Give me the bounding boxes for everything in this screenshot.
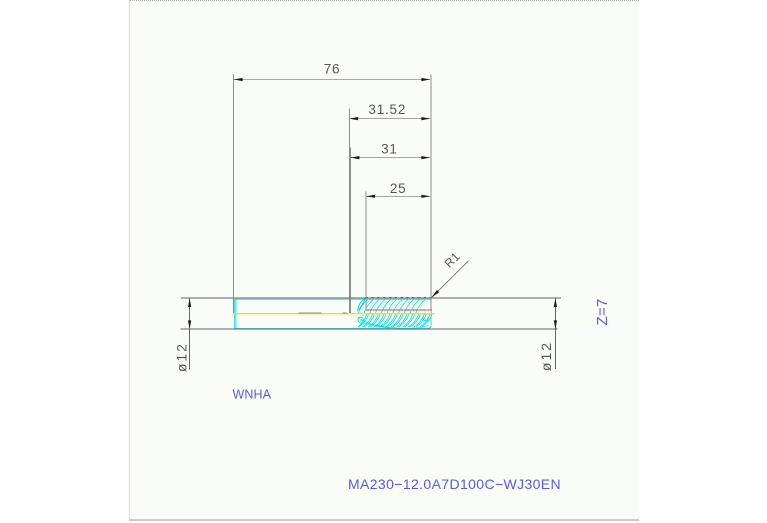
svg-text:25: 25 [390, 181, 407, 196]
svg-text:MA230−12.0A7D100C−WJ30EN: MA230−12.0A7D100C−WJ30EN [348, 476, 561, 492]
svg-text:WNHA: WNHA [233, 388, 272, 402]
svg-text:Z=7: Z=7 [594, 298, 611, 325]
svg-text:R1: R1 [442, 249, 463, 270]
svg-text:ø12: ø12 [538, 341, 554, 371]
svg-text:76: 76 [324, 62, 341, 77]
svg-text:ø12: ø12 [173, 342, 189, 372]
svg-text:31: 31 [381, 141, 398, 156]
svg-text:31.52: 31.52 [368, 102, 406, 117]
